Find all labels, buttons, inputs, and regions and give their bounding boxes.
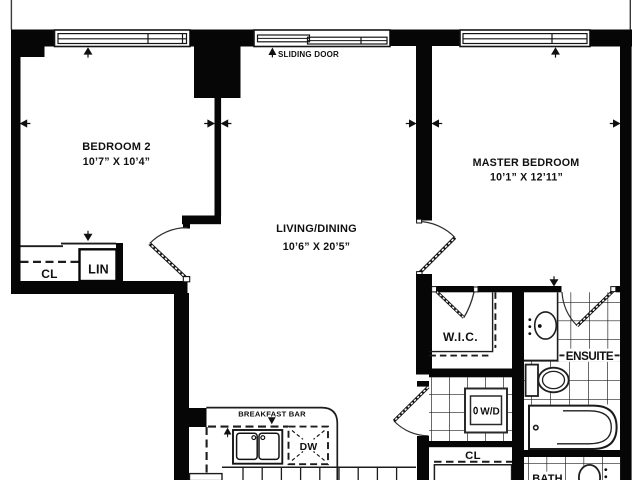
svg-text:SLIDING DOOR: SLIDING DOOR	[278, 50, 339, 59]
svg-text:BEDROOM 2: BEDROOM 2	[82, 141, 150, 153]
svg-text:10’1” X 12’11”: 10’1” X 12’11”	[490, 172, 563, 184]
svg-text:BREAKFAST BAR: BREAKFAST BAR	[238, 410, 306, 419]
svg-text:LIVING/DINING: LIVING/DINING	[276, 223, 357, 235]
svg-text:MASTER BEDROOM: MASTER BEDROOM	[473, 157, 580, 169]
svg-text:W/D: W/D	[480, 406, 499, 417]
svg-text:LIN: LIN	[88, 263, 109, 277]
svg-text:W.I.C.: W.I.C.	[443, 330, 478, 344]
svg-text:ENSUITE: ENSUITE	[566, 350, 614, 363]
svg-text:10’7” X 10’4”: 10’7” X 10’4”	[83, 156, 150, 168]
svg-text:BATH: BATH	[532, 473, 563, 480]
svg-text:CL: CL	[41, 267, 57, 281]
svg-text:CL: CL	[465, 450, 481, 462]
svg-text:10’6” X 20’5”: 10’6” X 20’5”	[283, 241, 350, 253]
svg-text:DW: DW	[300, 442, 318, 453]
